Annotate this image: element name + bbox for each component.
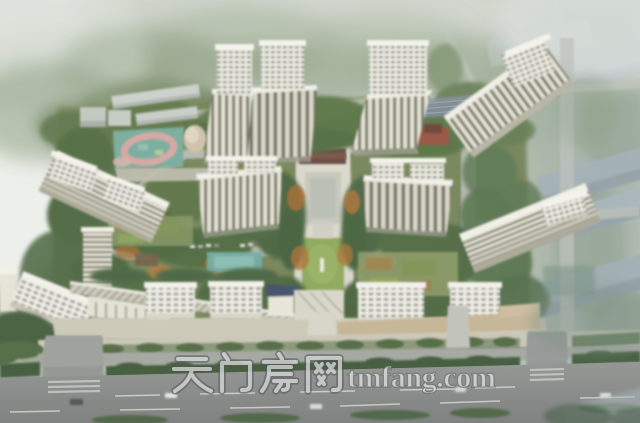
svg-text:tmfang.com: tmfang.com [347,361,496,394]
